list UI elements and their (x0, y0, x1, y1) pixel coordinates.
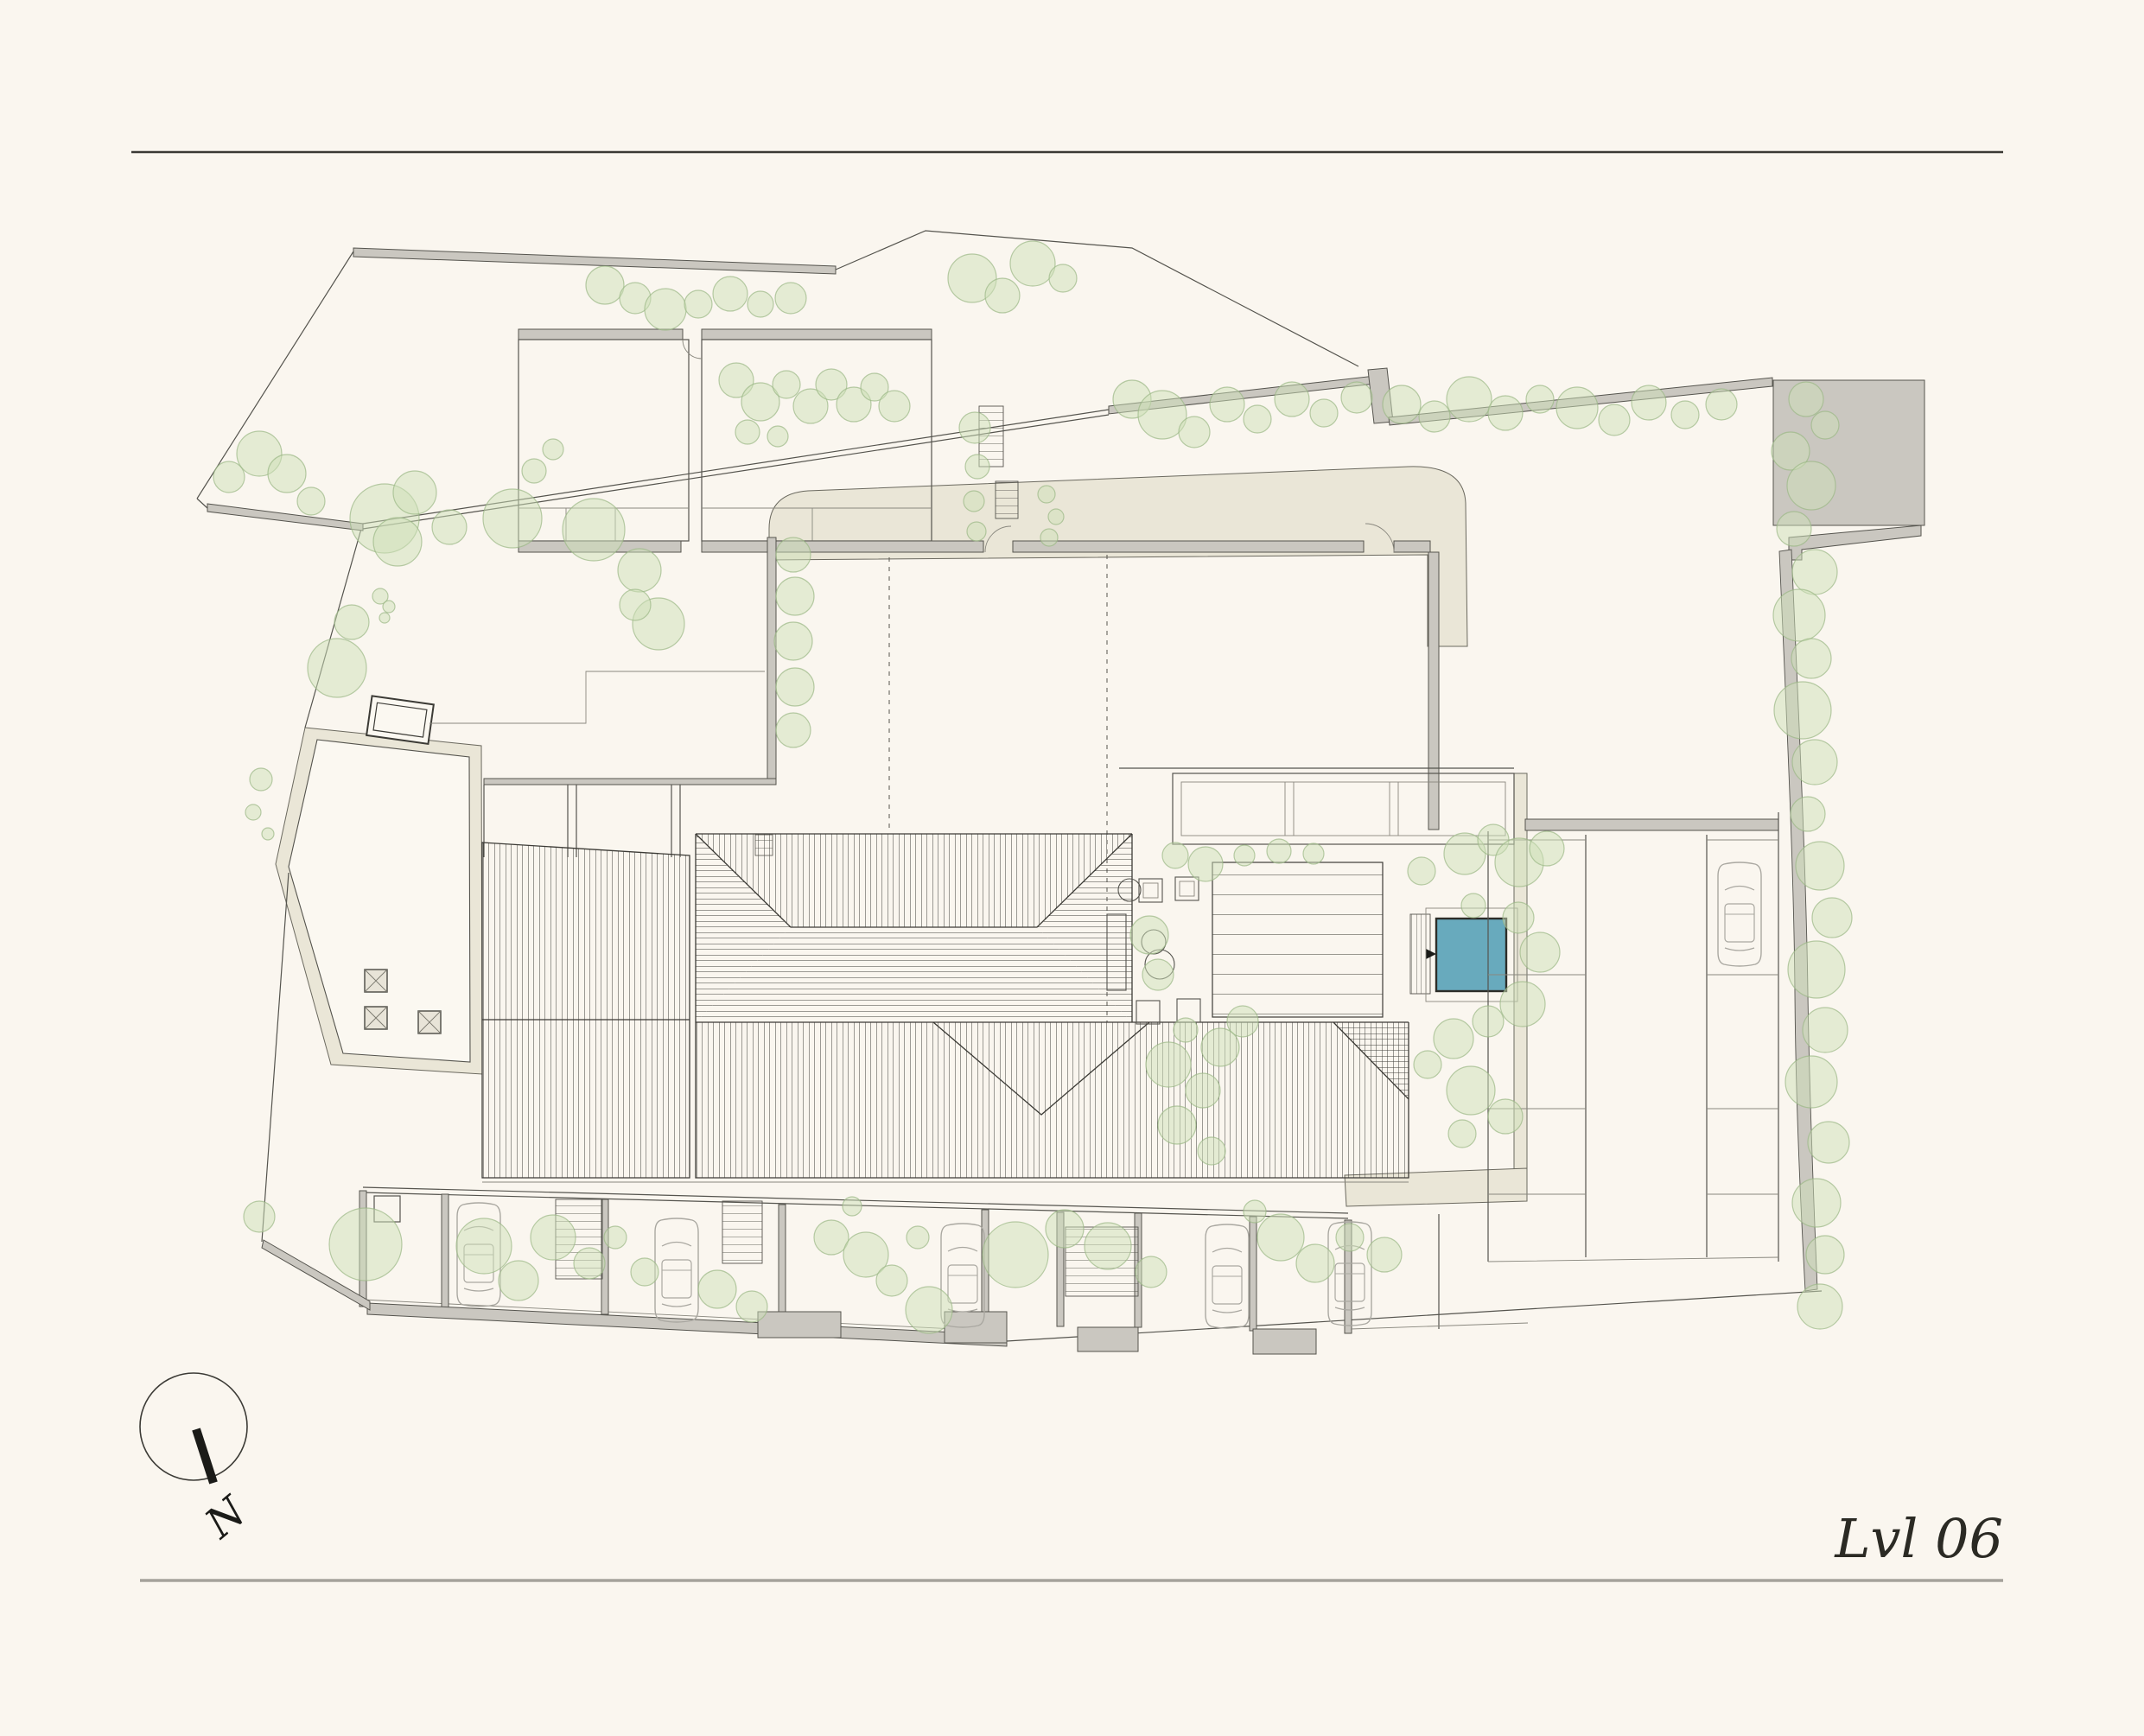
tree (1785, 1056, 1837, 1108)
north-needle (196, 1429, 213, 1483)
skylight (365, 1007, 387, 1029)
tree (499, 1261, 538, 1300)
tree (1787, 461, 1835, 510)
tree (1310, 399, 1338, 427)
retaining-wall-left (207, 504, 363, 531)
tree (964, 491, 984, 512)
tree (906, 1287, 952, 1333)
tree (879, 391, 910, 422)
tree (1419, 401, 1450, 432)
tree (1179, 417, 1210, 448)
tree (1296, 1244, 1334, 1282)
tree (1275, 382, 1309, 417)
chair (1136, 1001, 1160, 1024)
roof-left (482, 843, 690, 1178)
tree (843, 1197, 862, 1216)
tree (1341, 382, 1372, 413)
tree (334, 605, 369, 639)
tree (1158, 1106, 1196, 1144)
tree (1500, 982, 1545, 1027)
tree (1367, 1237, 1402, 1272)
tree (1488, 1099, 1523, 1134)
pool-stairs (1410, 914, 1436, 994)
car (1206, 1224, 1249, 1328)
tree (1788, 941, 1845, 998)
tree (776, 668, 814, 706)
tree (1244, 1200, 1266, 1223)
tree (563, 499, 625, 561)
tree (774, 622, 812, 660)
tree (1789, 382, 1823, 417)
tree (1461, 893, 1486, 918)
tree (1136, 1256, 1167, 1288)
tree (1792, 740, 1837, 785)
tree (574, 1248, 605, 1279)
pier (1253, 1329, 1316, 1354)
tree (1174, 1018, 1198, 1042)
pentagon-terrace (276, 696, 482, 1074)
tree (1599, 404, 1630, 436)
tree (531, 1215, 576, 1260)
tree (907, 1226, 929, 1249)
tree (1010, 241, 1055, 286)
tree (1244, 405, 1271, 433)
compass: N (140, 1373, 257, 1548)
tree (1414, 1051, 1441, 1078)
tree (586, 266, 624, 304)
tree (985, 278, 1020, 313)
neighbor-step-line (429, 671, 765, 723)
parking-top-wall (1525, 819, 1778, 830)
tree (1162, 843, 1188, 868)
tree (1808, 1122, 1849, 1163)
tree (1447, 377, 1492, 422)
tree (767, 426, 788, 447)
tree (1526, 385, 1554, 413)
tree (965, 455, 989, 479)
tree (748, 291, 773, 317)
tree (776, 577, 814, 615)
car (1718, 862, 1761, 966)
tree (1520, 932, 1560, 972)
tree (393, 471, 436, 514)
level-label: Lvl 06 (1834, 1507, 2003, 1570)
tree (379, 613, 390, 623)
wall-segment (1428, 552, 1439, 830)
tree (308, 639, 366, 697)
tree (329, 1208, 402, 1281)
tree (383, 601, 395, 613)
tree (1303, 843, 1324, 864)
tree (1038, 486, 1055, 503)
tree (1188, 847, 1223, 881)
skylight (418, 1011, 441, 1033)
wall-segment (702, 541, 983, 552)
tree (297, 487, 325, 515)
tree (1791, 797, 1825, 831)
tree (1198, 1137, 1225, 1165)
door-swing (683, 340, 702, 359)
tree (1812, 898, 1852, 938)
tree (262, 828, 274, 840)
tree (456, 1218, 512, 1274)
pavilion (1119, 768, 1514, 844)
tree (735, 420, 760, 444)
wall-segment (1013, 541, 1364, 552)
tree (967, 522, 986, 541)
direction-arrow (1426, 949, 1436, 959)
tree (1146, 1042, 1191, 1087)
tree (1085, 1223, 1131, 1269)
tree (245, 804, 261, 820)
tree (1797, 1284, 1842, 1329)
tree (618, 549, 661, 592)
pier (1078, 1327, 1138, 1351)
tree (1671, 401, 1699, 429)
tree (1706, 389, 1737, 420)
tree (543, 439, 563, 460)
tree (1473, 1006, 1504, 1037)
tree (1803, 1008, 1848, 1052)
tree (1049, 264, 1077, 292)
compass-circle (140, 1373, 247, 1480)
tree (1408, 857, 1435, 885)
site-plan-drawing: Lvl 06 N (0, 0, 2144, 1736)
tree (1186, 1073, 1220, 1108)
pier (758, 1312, 841, 1338)
tree (1046, 1210, 1084, 1248)
drawing-sheet: Lvl 06 N (0, 0, 2144, 1736)
tree (432, 510, 467, 544)
tree (1530, 831, 1564, 866)
tree (1792, 1179, 1841, 1227)
tree (244, 1201, 275, 1232)
tree (1142, 959, 1174, 990)
tree (775, 283, 806, 314)
tree (776, 713, 811, 747)
tree (1488, 396, 1523, 430)
tree (1130, 916, 1168, 954)
chimney (366, 696, 434, 744)
tree (1806, 1236, 1844, 1274)
tree (1210, 387, 1244, 422)
tree (1774, 682, 1831, 739)
tree (522, 459, 546, 483)
tree (1448, 1120, 1476, 1148)
tree (1632, 385, 1666, 420)
tree (1257, 1214, 1304, 1261)
tree (1792, 550, 1837, 595)
car (655, 1218, 698, 1322)
tree (983, 1222, 1048, 1288)
tree (698, 1270, 736, 1308)
tree (1048, 509, 1064, 525)
tree (483, 489, 542, 548)
tree (1796, 842, 1844, 890)
tree (1773, 589, 1825, 641)
top-wall-b (702, 329, 932, 340)
tree (1267, 839, 1291, 863)
tree (1503, 902, 1534, 933)
slat-deck (1212, 862, 1383, 1017)
tree (620, 589, 651, 620)
tree (268, 455, 306, 493)
wall-segment (1394, 541, 1430, 552)
tree (373, 518, 422, 566)
tree (1201, 1028, 1239, 1066)
tree (631, 1258, 658, 1286)
tree (1040, 529, 1058, 546)
upper-walkway (769, 467, 1467, 646)
tree (1791, 639, 1831, 678)
tree (604, 1226, 627, 1249)
tree (213, 461, 245, 493)
north-label: N (196, 1486, 257, 1548)
tree (645, 289, 686, 330)
pool (1436, 919, 1506, 991)
tree (1811, 411, 1839, 439)
tree (1434, 1019, 1473, 1059)
tree (684, 290, 712, 318)
tree (1447, 1066, 1495, 1115)
skylight (365, 970, 387, 992)
tree (1234, 845, 1255, 866)
tree (1777, 512, 1811, 546)
roof-access-stair (755, 835, 773, 855)
tree (776, 537, 811, 572)
tree (814, 1220, 849, 1255)
tree (736, 1291, 767, 1322)
wall-segment (767, 537, 776, 782)
tree (1556, 387, 1598, 429)
top-wall-a (519, 329, 683, 340)
wall-segment (484, 779, 776, 785)
tree (1383, 385, 1421, 423)
tree (876, 1265, 907, 1296)
tree (1336, 1224, 1364, 1251)
tree (713, 277, 748, 311)
tree (773, 371, 800, 398)
tree (250, 768, 272, 791)
chair (1139, 879, 1162, 902)
tree (959, 412, 990, 443)
chair (1175, 877, 1199, 900)
